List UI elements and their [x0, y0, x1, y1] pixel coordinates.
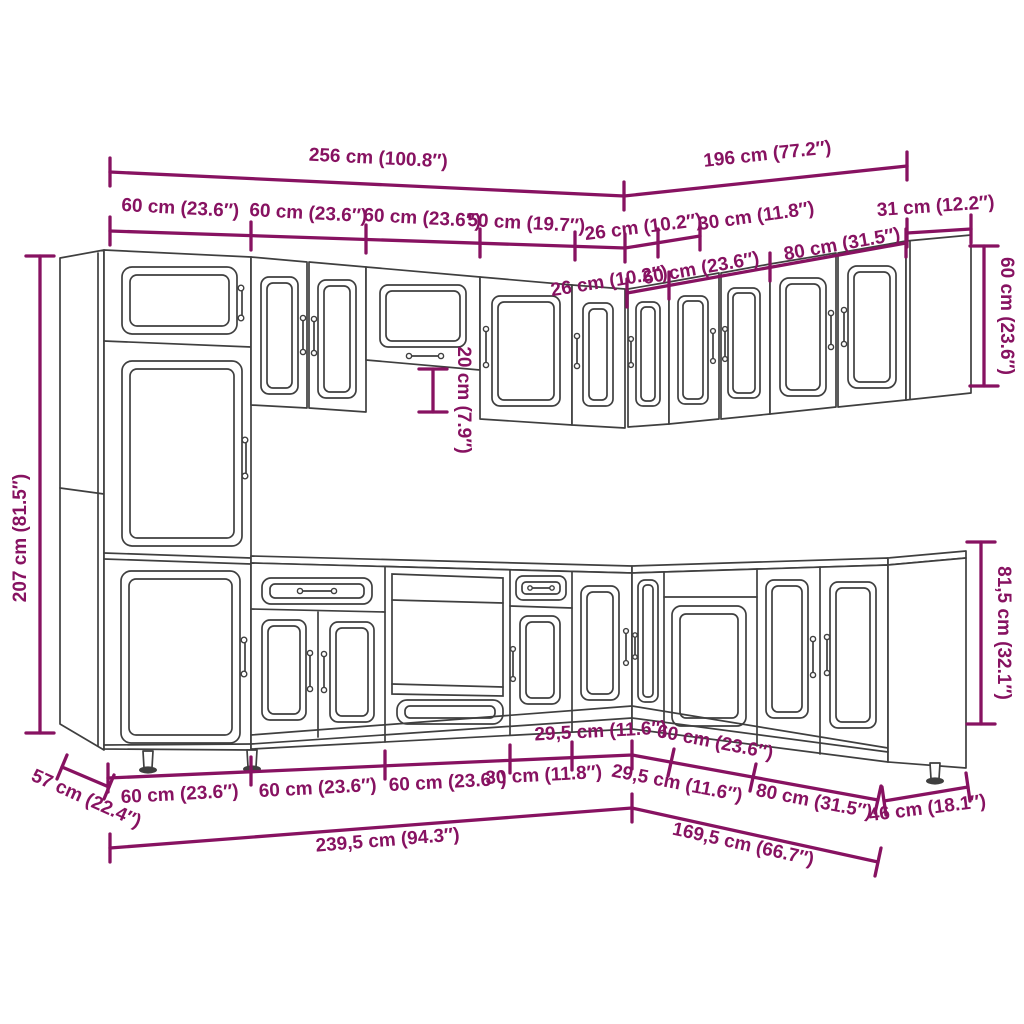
- dim-label-wall-left-2: 60 cm (23.6″): [249, 200, 368, 227]
- cabinet-dimension-diagram: 256 cm (100.8″) 196 cm (77.2″) 60 cm (23…: [0, 0, 1024, 1024]
- base-right-side-panel: [888, 558, 966, 768]
- dim-label-total-left: 256 cm (100.8″): [308, 145, 448, 173]
- toekick-tall: [104, 744, 251, 745]
- dim-label-base-end-depth: 46 cm (18.1″): [868, 791, 988, 826]
- dim-line-wall-height: [970, 246, 998, 386]
- dim-label-base-left-4: 30 cm (11.8″): [485, 762, 603, 789]
- wall-right-side-panel: [906, 235, 971, 400]
- dim-label-base-left-1: 60 cm (23.6″): [120, 781, 239, 808]
- tall-cabinet: [60, 250, 251, 750]
- dim-label-bridge-gap: 20 cm (7.9″): [453, 346, 474, 453]
- dim-label-base-total-right: 169,5 cm (66.7″): [670, 819, 815, 871]
- dim-label-base-left-2: 60 cm (23.6″): [258, 775, 377, 802]
- diagram-canvas: 256 cm (100.8″) 196 cm (77.2″) 60 cm (23…: [0, 0, 1024, 1024]
- dim-label-wall-left-3: 60 cm (23.6″): [363, 205, 482, 232]
- dim-label-base-right-1: 29,5 cm (11.6″): [610, 761, 744, 807]
- dim-label-tall-height: 207 cm (81.5″): [10, 474, 31, 602]
- tall-cabinet-front: [104, 250, 251, 750]
- dim-label-wall-height: 60 cm (23.6″): [996, 257, 1017, 375]
- dim-label-wall-left-1: 60 cm (23.6″): [121, 195, 240, 222]
- cabinet-foot-1: [139, 751, 157, 774]
- dim-label-wall-corner-right: 30 cm (11.8″): [697, 198, 816, 235]
- dim-label-total-right: 196 cm (77.2″): [702, 137, 832, 172]
- dim-label-base-right-3: 80 cm (31.5″): [754, 780, 874, 823]
- dim-line-base-height: [967, 542, 995, 724]
- dim-label-wall-left-4: 50 cm (19.7″): [467, 210, 586, 237]
- dim-label-base-height: 81,5 cm (32.1″): [993, 566, 1014, 700]
- dim-line-bridge-gap: [419, 369, 447, 412]
- dim-label-wall-end-depth: 31 cm (12.2″): [876, 192, 995, 221]
